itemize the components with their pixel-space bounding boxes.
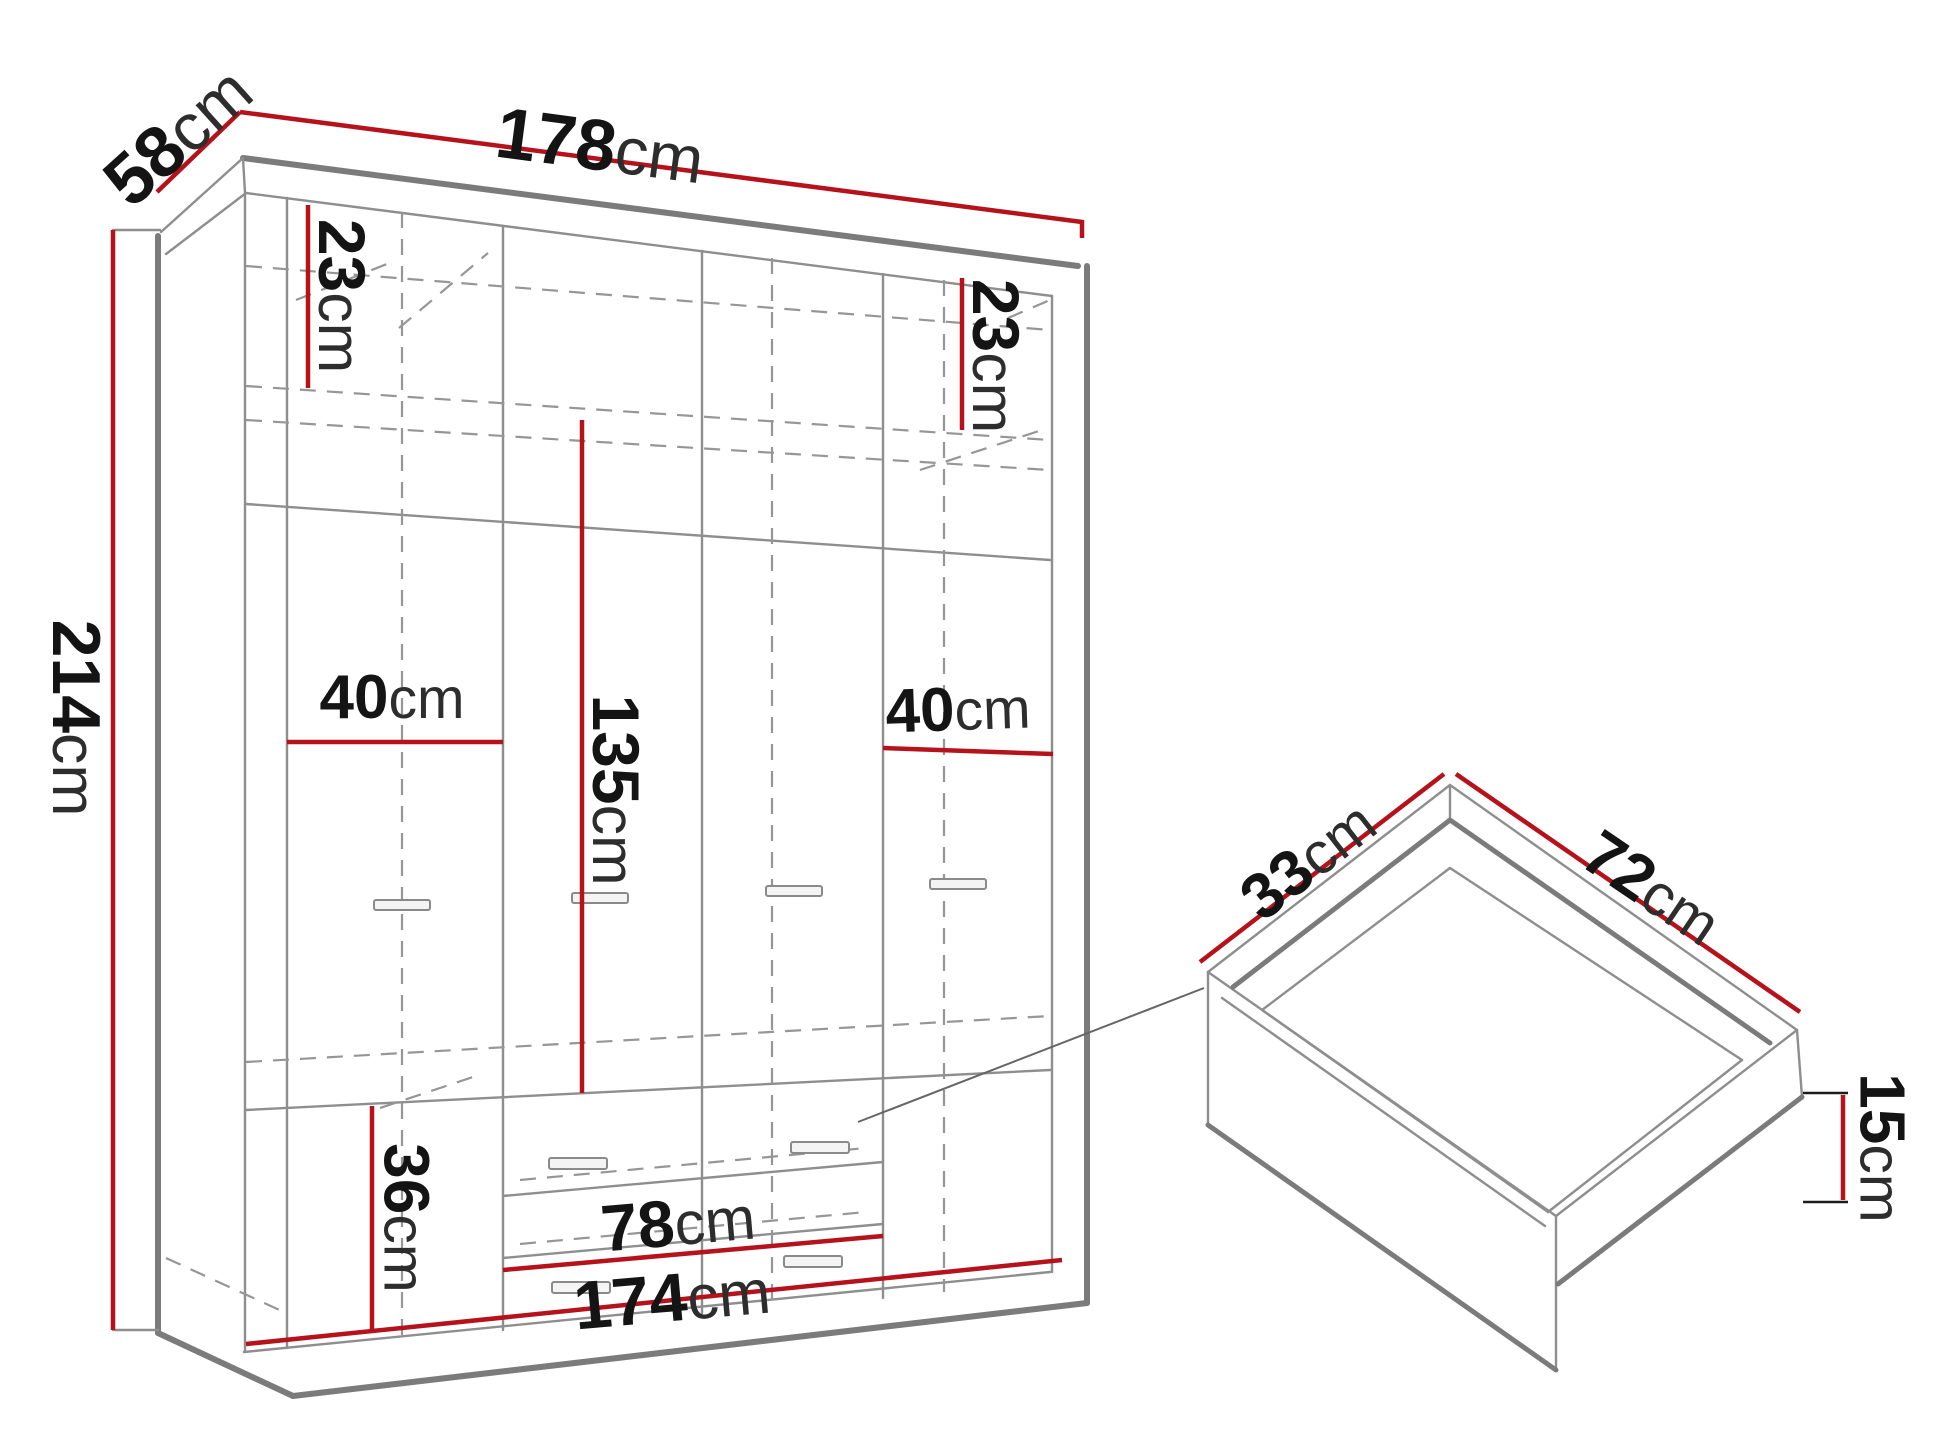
drawer-right-wall-bottom (1558, 1097, 1802, 1284)
drawer-floor-front-left (1262, 1010, 1548, 1212)
side-top-bevel (166, 193, 246, 254)
dim-value-135: 135 (579, 694, 653, 804)
drawer-handle-1 (549, 1158, 607, 1169)
dim-unit-135: cm (580, 805, 648, 886)
door-handle-1 (374, 900, 430, 910)
dim-label-15: 15cm (1850, 1073, 1915, 1223)
dim-label-78: 78cm (598, 1182, 758, 1261)
dim-unit-23-left: cm (306, 292, 374, 373)
dim-unit-40-left: cm (388, 667, 464, 731)
dim-value-23-right: 23 (959, 279, 1033, 352)
dim-unit-36: cm (371, 1214, 436, 1292)
dim-value-15: 15 (1846, 1073, 1918, 1144)
dim-value-178: 178 (491, 93, 621, 188)
dim-value-40-left: 40 (320, 663, 389, 732)
dim-unit-40-right: cm (953, 676, 1031, 743)
shelf-line-upper (246, 504, 1050, 560)
dim-line-40-right (883, 748, 1053, 754)
drawer-section-top (246, 1070, 1050, 1110)
interior-shelf-dash-4 (246, 1016, 1050, 1062)
drawer-rim-front-right-edge (1556, 1030, 1797, 1216)
diagram-canvas: 58cm 178cm 214cm 23cm 23cm 40cm 135cm 40… (0, 0, 1940, 1456)
interior-shelf-dash-2 (246, 386, 1050, 440)
dim-value-214: 214 (38, 620, 114, 733)
drawer-front-panel-inner-top (1222, 998, 1545, 1226)
drawer-floor-front-right (1548, 1060, 1742, 1212)
door-handle-3 (766, 886, 822, 896)
drawer-right-wall-corner (1797, 1030, 1802, 1097)
dim-label-23-right: 23cm (963, 279, 1029, 433)
dim-value-23-left: 23 (305, 219, 379, 292)
door-handle-4 (930, 879, 986, 889)
dim-unit-214: cm (39, 733, 109, 816)
crown-corner-stub (243, 158, 245, 193)
drawer-handle-2 (791, 1142, 849, 1153)
dim-value-40-right: 40 (884, 675, 955, 746)
leader-line-to-drawer-detail (858, 988, 1204, 1122)
corner-diagonal-6 (380, 1076, 476, 1108)
corner-diagonal-2 (399, 253, 488, 328)
dim-value-78: 78 (598, 1185, 678, 1265)
dim-label-214: 214cm (42, 620, 110, 817)
dim-value-36: 36 (370, 1143, 442, 1214)
dim-unit-174: cm (684, 1257, 773, 1334)
dim-label-174: 174cm (571, 1256, 773, 1341)
drawer-front-panel-bottom (1208, 1125, 1556, 1370)
dim-label-135: 135cm (583, 694, 649, 885)
dim-unit-178: cm (611, 113, 708, 198)
dim-value-174: 174 (571, 1259, 691, 1345)
dim-label-23-left: 23cm (309, 219, 375, 373)
interior-shelf-dash-3 (246, 420, 1050, 470)
drawer-handle-4 (784, 1256, 842, 1267)
dim-unit-15: cm (1847, 1144, 1912, 1222)
dim-label-40-left: 40cm (320, 667, 465, 729)
dim-label-40-right: 40cm (884, 676, 1031, 743)
dim-label-36: 36cm (374, 1143, 439, 1293)
corner-diagonal-5 (166, 1258, 284, 1312)
dim-unit-78: cm (671, 1183, 758, 1258)
dim-unit-23-right: cm (960, 352, 1028, 433)
